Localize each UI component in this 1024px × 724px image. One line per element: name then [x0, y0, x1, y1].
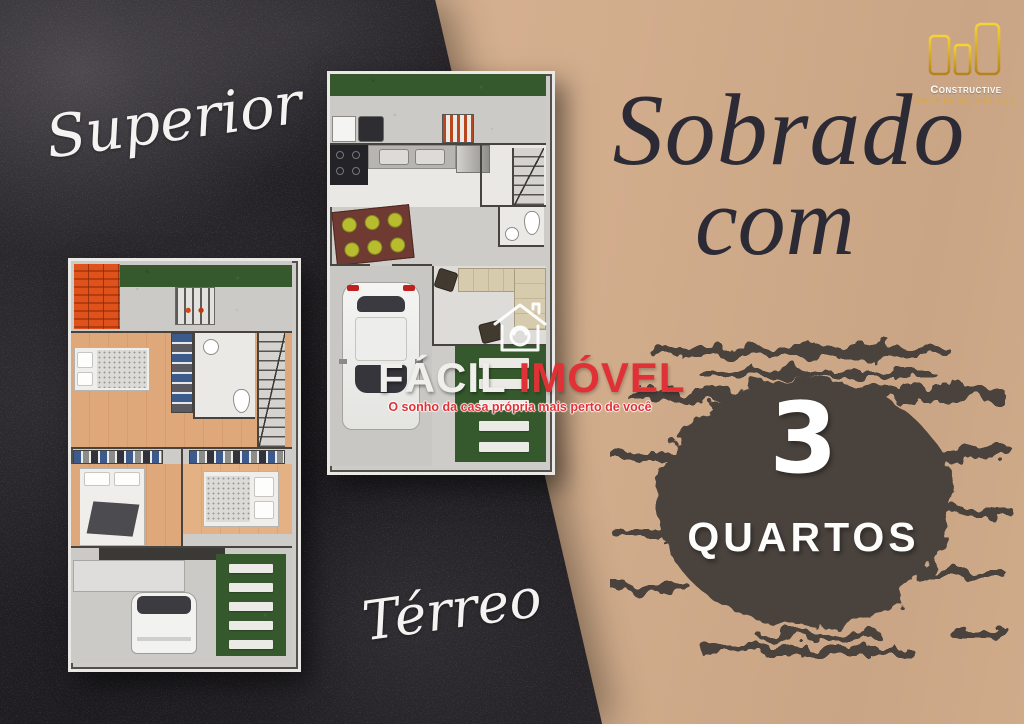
pillow	[114, 472, 140, 486]
balcony-ledge	[73, 560, 185, 592]
stepping-stone	[479, 421, 529, 431]
kitchen-counter	[368, 145, 456, 169]
logo-name: Constructive	[913, 84, 1019, 96]
grass-strip	[330, 74, 546, 96]
brand-first-word: FÁCIL	[378, 354, 506, 401]
pillow	[254, 477, 274, 497]
constructive-logo: Constructive empreendimentos	[913, 16, 1019, 105]
burner	[336, 151, 344, 159]
bed	[79, 468, 145, 546]
grass-strip	[111, 265, 292, 287]
toilet	[524, 211, 540, 235]
blanket	[206, 476, 250, 522]
burner	[336, 167, 344, 175]
laundry-tub	[332, 116, 356, 142]
headline-line2: com	[544, 178, 1006, 266]
roof-tiles	[74, 264, 120, 329]
plate	[364, 214, 380, 230]
dark-throw	[87, 501, 140, 536]
pillow	[254, 501, 274, 519]
car-windshield	[137, 596, 191, 614]
sink	[203, 339, 219, 355]
plate	[389, 237, 405, 253]
headline: Sobrado com	[558, 84, 1020, 266]
plate	[344, 242, 360, 258]
sofa	[458, 268, 518, 292]
wardrobe	[73, 450, 163, 464]
floorplan-terreo	[327, 71, 555, 475]
sink	[505, 227, 519, 241]
wardrobe	[171, 333, 193, 413]
porch-opening	[99, 548, 225, 560]
plate	[341, 217, 357, 233]
plate	[367, 239, 383, 255]
buildings-icon	[921, 16, 1011, 78]
staircase	[257, 333, 285, 447]
brand-name: FÁCIL IMÓVEL	[378, 357, 662, 399]
sink-basin	[415, 149, 445, 165]
floorplan-superior	[68, 258, 301, 672]
stepping-stone	[229, 640, 273, 649]
stepping-stone	[479, 442, 529, 452]
facil-imovel-watermark: FÁCIL IMÓVEL O sonho da casa própria mai…	[378, 300, 662, 414]
stepping-stone	[229, 621, 273, 630]
blanket	[97, 350, 147, 388]
staircase	[512, 148, 544, 206]
plate	[387, 212, 403, 228]
taillight	[403, 285, 415, 291]
barbecue-grill	[175, 287, 215, 325]
brand-tagline: O sonho da casa própria mais perto de vo…	[378, 400, 662, 414]
barbecue-grill	[442, 114, 474, 143]
burner	[352, 151, 360, 159]
laundry-machine	[358, 116, 384, 142]
bathroom	[498, 207, 544, 247]
stepping-stone	[229, 602, 273, 611]
house-camera-icon	[489, 300, 551, 354]
car-front	[131, 592, 197, 654]
fridge	[456, 145, 490, 173]
double-bed	[74, 347, 150, 391]
burner	[352, 167, 360, 175]
toilet	[233, 389, 250, 413]
logo-subtitle: empreendimentos	[913, 98, 1019, 105]
stepping-stone	[229, 564, 273, 573]
wall	[480, 145, 482, 205]
rooms-label: QUARTOS	[610, 514, 997, 561]
taillight	[347, 285, 359, 291]
sink-basin	[379, 149, 409, 165]
stove	[330, 145, 368, 185]
bathroom	[193, 333, 255, 419]
pillow	[77, 352, 93, 368]
pillow	[84, 472, 110, 486]
pillow	[77, 372, 93, 386]
dining-table	[331, 204, 414, 266]
wardrobe	[189, 450, 285, 464]
car-mirror	[339, 359, 347, 364]
stepping-stone	[229, 583, 273, 592]
car-hood-line	[137, 637, 191, 641]
brand-second-word: IMÓVEL	[519, 354, 686, 401]
bed	[203, 471, 279, 527]
flyer-canvas: Superior Térreo	[0, 0, 1024, 724]
side-garden	[216, 554, 286, 656]
